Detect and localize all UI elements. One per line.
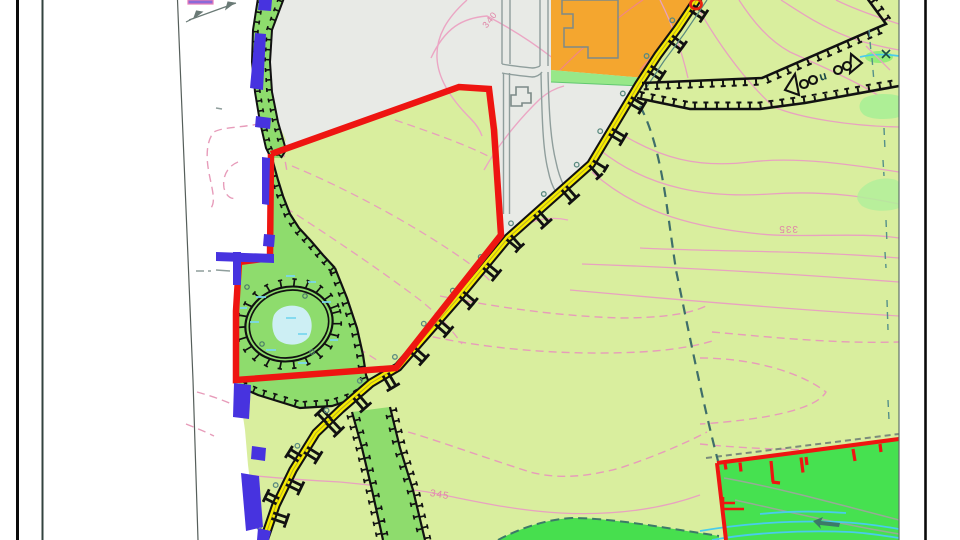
svg-text:335: 335: [778, 223, 798, 234]
